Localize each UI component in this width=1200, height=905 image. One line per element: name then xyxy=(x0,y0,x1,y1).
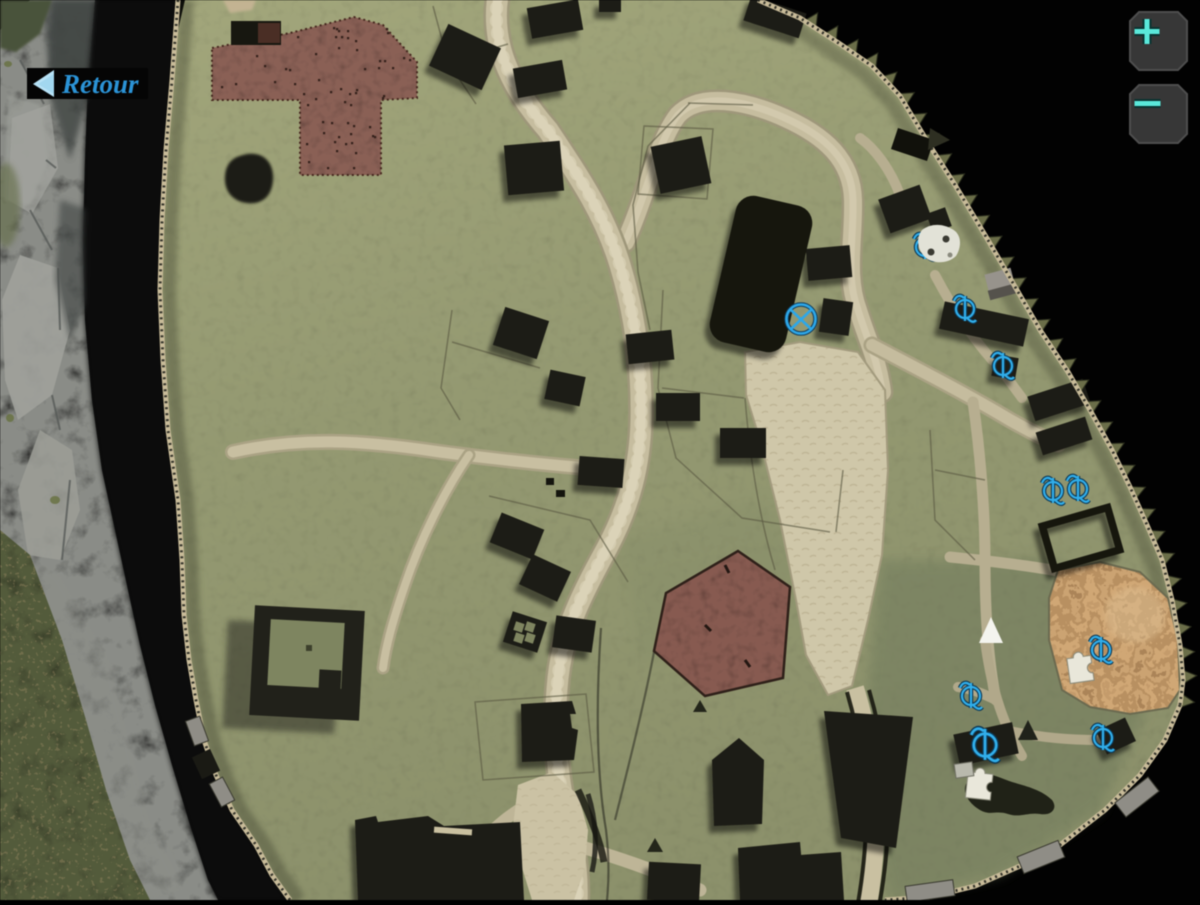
svg-text:Retour: Retour xyxy=(61,69,139,99)
